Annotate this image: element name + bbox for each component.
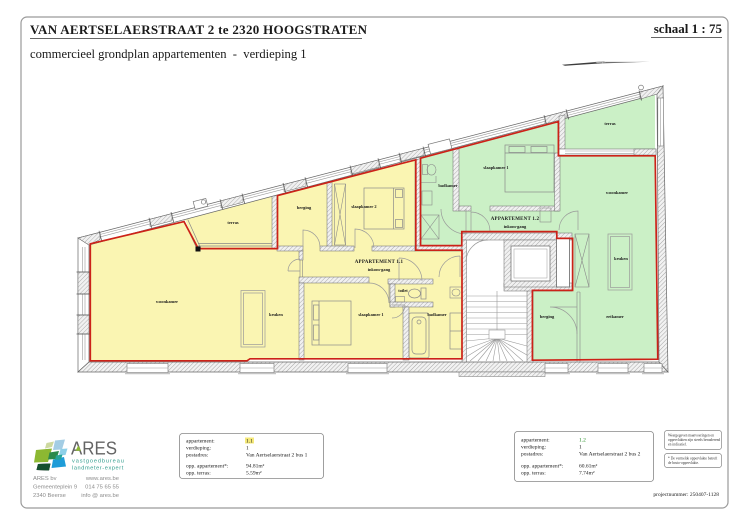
svg-text:woonkamer: woonkamer: [606, 190, 628, 195]
svg-text:1.1: 1.1: [246, 439, 253, 445]
svg-text:terras: terras: [604, 121, 616, 126]
svg-text:schaal 1 : 75: schaal 1 : 75: [654, 21, 723, 36]
svg-text:014 75 65 55: 014 75 65 55: [85, 485, 119, 491]
svg-text:terras: terras: [227, 220, 239, 225]
svg-text:landmeter-expert: landmeter-expert: [72, 466, 124, 472]
svg-text:APPARTEMENT 1.2: APPARTEMENT 1.2: [491, 217, 540, 222]
svg-text:VAN AERTSELAERSTRAAT 2 te 2320: VAN AERTSELAERSTRAAT 2 te 2320 HOOGSTRAT…: [30, 22, 368, 37]
svg-text:Weergegeven maatvoeringen en: Weergegeven maatvoeringen en: [668, 434, 714, 438]
svg-text:en indicatief.: en indicatief.: [668, 443, 687, 447]
svg-text:1.2: 1.2: [579, 438, 586, 444]
svg-text:keuken: keuken: [269, 312, 283, 317]
svg-text:opp. appartement*:: opp. appartement*:: [521, 464, 564, 470]
svg-text:badkamer: badkamer: [427, 312, 446, 317]
svg-text:Van Aertselaerstraat 2 bus 2: Van Aertselaerstraat 2 bus 2: [579, 452, 641, 458]
svg-text:de bruto-oppervlakte.: de bruto-oppervlakte.: [668, 461, 699, 465]
svg-text:vastgoedbureau: vastgoedbureau: [72, 459, 125, 465]
svg-text:5.59m²: 5.59m²: [246, 471, 262, 477]
svg-text:opp. terras:: opp. terras:: [186, 471, 211, 477]
svg-text:2340 Beerse: 2340 Beerse: [33, 493, 66, 499]
svg-text:inkom-gang: inkom-gang: [504, 224, 527, 229]
svg-text:oppervlakten zijn steeds benad: oppervlakten zijn steeds benaderend: [668, 438, 720, 442]
svg-text:1: 1: [579, 445, 582, 451]
svg-text:* De vermelde oppervlakte betr: * De vermelde oppervlakte betreft: [668, 457, 717, 461]
svg-text:berging: berging: [540, 314, 555, 319]
svg-text:appartement:: appartement:: [521, 438, 550, 444]
svg-text:keuken: keuken: [614, 256, 628, 261]
svg-text:Gemeenteplein 9: Gemeenteplein 9: [33, 485, 77, 491]
svg-text:badkamer: badkamer: [438, 183, 457, 188]
svg-text:slaapkamer 1: slaapkamer 1: [358, 312, 383, 317]
svg-text:slaapkamer 1: slaapkamer 1: [483, 165, 508, 170]
svg-text:inkom-gang: inkom-gang: [368, 267, 391, 272]
svg-text:commercieel grondplan appartem: commercieel grondplan appartementen - ve…: [30, 47, 307, 61]
svg-text:7.74m²: 7.74m²: [579, 471, 595, 477]
svg-text:info @ ares.be: info @ ares.be: [81, 493, 119, 499]
svg-text:ARES bv: ARES bv: [33, 476, 57, 482]
svg-text:postadres:: postadres:: [521, 452, 544, 458]
svg-text:projectnummer: 250407-1128: projectnummer: 250407-1128: [653, 492, 719, 498]
svg-text:appartement:: appartement:: [186, 439, 215, 445]
svg-text:toilet: toilet: [398, 288, 408, 293]
svg-text:opp. appartement*:: opp. appartement*:: [186, 464, 229, 470]
svg-text:verdieping:: verdieping:: [186, 446, 212, 452]
svg-text:www.ares.be: www.ares.be: [85, 476, 119, 482]
svg-text:APPARTEMENT 1.1: APPARTEMENT 1.1: [355, 260, 404, 265]
svg-text:Van Aertselaerstraat 2 bus 1: Van Aertselaerstraat 2 bus 1: [246, 453, 308, 459]
svg-text:eetkamer: eetkamer: [606, 314, 624, 319]
svg-text:opp. terras:: opp. terras:: [521, 471, 546, 477]
svg-text:woonkamer: woonkamer: [156, 299, 178, 304]
svg-text:verdieping:: verdieping:: [521, 445, 547, 451]
svg-text:berging: berging: [297, 205, 312, 210]
svg-text:1: 1: [246, 446, 249, 452]
svg-text:60.61m²: 60.61m²: [579, 464, 598, 470]
svg-text:postadres:: postadres:: [186, 453, 209, 459]
svg-text:slaapkamer 2: slaapkamer 2: [351, 204, 376, 209]
svg-text:94.81m²: 94.81m²: [246, 464, 265, 470]
